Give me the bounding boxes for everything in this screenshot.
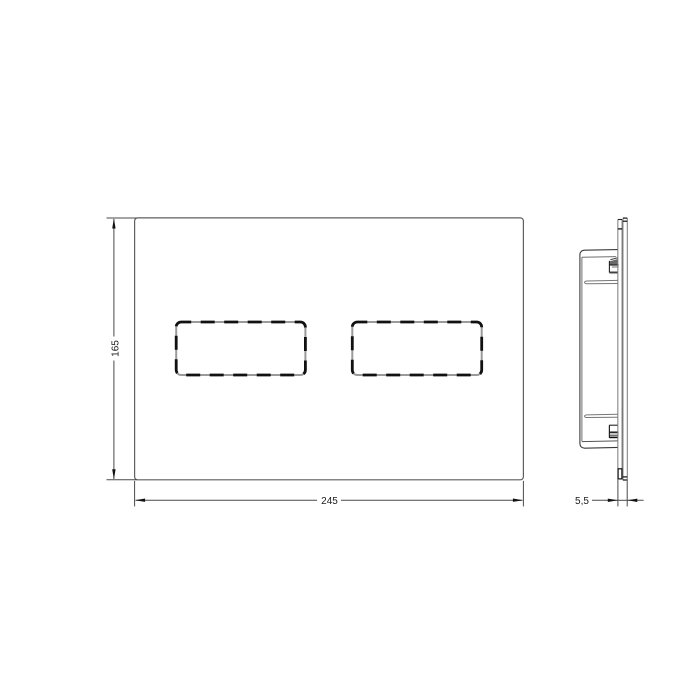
svg-text:165: 165: [111, 340, 122, 357]
svg-text:245: 245: [321, 496, 338, 507]
svg-text:5,5: 5,5: [575, 496, 589, 507]
